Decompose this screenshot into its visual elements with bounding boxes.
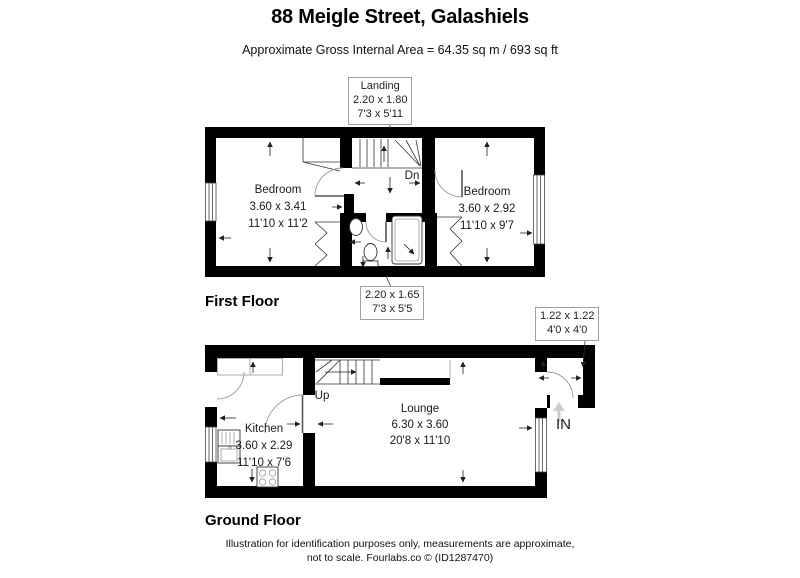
- lounge-imperial: 20'8 x 11'10: [390, 435, 450, 447]
- landing-callout-metric: 2.20 x 1.80: [353, 94, 407, 108]
- ground-floor-label: Ground Floor: [205, 512, 301, 529]
- stairs-up-label: Up: [315, 390, 330, 402]
- bedroom-left-metric: 3.60 x 3.41: [250, 201, 307, 213]
- porch-callout: 1.22 x 1.22 4'0 x 4'0: [535, 307, 599, 341]
- bedroom-right-metric: 3.60 x 2.92: [459, 203, 516, 215]
- toilet: [363, 244, 378, 267]
- ff-window-right: [533, 175, 545, 244]
- gf-left-wall: [205, 372, 217, 462]
- kitchen-name: Kitchen: [245, 423, 283, 435]
- bedroom-right-name: Bedroom: [464, 186, 511, 198]
- bathroom-callout-metric: 2.20 x 1.65: [365, 289, 419, 303]
- entrance-label: IN: [556, 416, 571, 433]
- bedroom-left-imperial: 11'10 x 11'2: [248, 218, 308, 230]
- kitchen-metric: 3.60 x 2.29: [236, 440, 293, 452]
- sink-basin: [350, 219, 363, 236]
- bathroom-callout-imperial: 7'3 x 5'5: [365, 303, 419, 317]
- bedroom-right-imperial: 11'10 x 9'7: [460, 220, 514, 232]
- porch-callout-imperial: 4'0 x 4'0: [540, 324, 594, 338]
- kitchen-stove: [257, 467, 278, 487]
- floorplan-page: Bedroom 3.60 x 3.41 11'10 x 11'2 Bedroom…: [0, 0, 800, 578]
- first-floor-plan: Bedroom 3.60 x 3.41 11'10 x 11'2 Bedroom…: [205, 127, 545, 277]
- kitchen-imperial: 11'10 x 7'6: [237, 457, 291, 469]
- ff-window-left: [205, 183, 217, 221]
- lounge-metric: 6.30 x 3.60: [392, 419, 449, 431]
- first-floor-label: First Floor: [205, 293, 279, 310]
- porch-callout-metric: 1.22 x 1.22: [540, 310, 594, 324]
- landing-callout: Landing 2.20 x 1.80 7'3 x 5'11: [348, 77, 412, 125]
- lounge-name: Lounge: [401, 403, 439, 415]
- stairs-down-label: Dn: [405, 170, 420, 182]
- shower: [392, 216, 422, 264]
- bedroom-left-name: Bedroom: [255, 184, 302, 196]
- ground-floor-plan: Kitchen 3.60 x 2.29 11'10 x 7'6 Lounge 6…: [205, 345, 595, 498]
- landing-callout-imperial: 7'3 x 5'11: [353, 108, 407, 122]
- landing-callout-name: Landing: [353, 80, 407, 94]
- gf-right-wall: [535, 358, 547, 486]
- stairs-half-wall: [380, 378, 450, 385]
- bathroom-callout: 2.20 x 1.65 7'3 x 5'5: [360, 286, 424, 320]
